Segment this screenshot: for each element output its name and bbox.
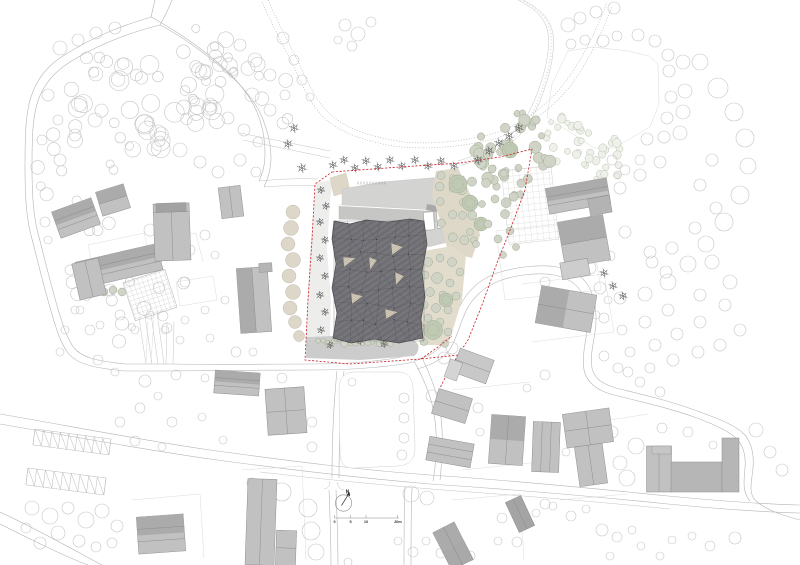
svg-text:20m: 20m <box>394 520 402 524</box>
svg-text:0: 0 <box>333 520 335 524</box>
svg-text:5: 5 <box>349 520 351 524</box>
svg-text:10: 10 <box>364 520 368 524</box>
svg-text:N: N <box>346 490 350 496</box>
